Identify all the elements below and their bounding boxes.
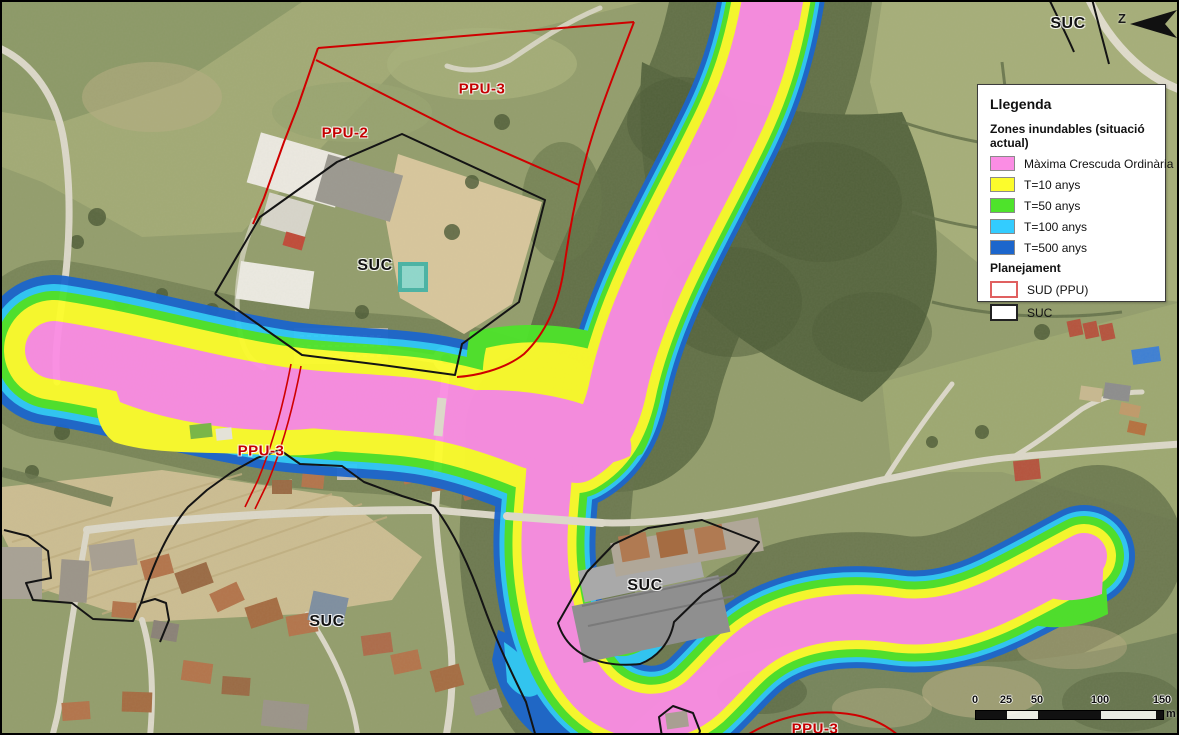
- map-label-ppu3-mid: PPU-3: [238, 443, 285, 460]
- scale-bar-segments: [975, 710, 1164, 720]
- mco-swatch: [990, 156, 1015, 171]
- t50-swatch: [990, 198, 1015, 213]
- legend-item-suc: SUC: [990, 304, 1153, 321]
- map-label-suc-factory: SUC: [627, 577, 662, 595]
- scale-unit: m: [1166, 708, 1176, 720]
- legend-item-label: T=50 anys: [1024, 199, 1080, 213]
- scale-tick: 25: [1000, 694, 1012, 706]
- scale-tick: 150: [1153, 694, 1171, 706]
- scale-bar: 0 25 50 100 150 m: [965, 694, 1177, 724]
- legend-item-sud: SUD (PPU): [990, 281, 1153, 298]
- legend: Llegenda Zones inundables (situació actu…: [977, 84, 1166, 302]
- t100-swatch: [990, 219, 1015, 234]
- legend-item-label: SUC: [1027, 306, 1052, 320]
- legend-item-t10: T=10 anys: [990, 177, 1153, 192]
- legend-item-t50: T=50 anys: [990, 198, 1153, 213]
- north-label: Z: [1118, 11, 1126, 26]
- legend-planning-section-title: Planejament: [990, 261, 1153, 275]
- map-label-ppu3-south: PPU-3: [792, 721, 839, 735]
- legend-flood-section-title: Zones inundables (situació actual): [990, 122, 1153, 150]
- legend-item-t500: T=500 anys: [990, 240, 1153, 255]
- scale-tick: 0: [972, 694, 978, 706]
- map-label-suc-school: SUC: [357, 257, 392, 275]
- scale-tick: 100: [1091, 694, 1109, 706]
- map-label-ppu3-north: PPU-3: [459, 81, 506, 98]
- legend-item-label: T=500 anys: [1024, 241, 1087, 255]
- legend-item-label: Màxima Crescuda Ordinària: [1024, 157, 1173, 171]
- t10-swatch: [990, 177, 1015, 192]
- flood-map-canvas: PPU-3 PPU-2 SUC PPU-3 SUC SUC SUC PPU-3 …: [0, 0, 1179, 735]
- legend-title: Llegenda: [990, 96, 1153, 112]
- suc-frame-swatch: [990, 304, 1018, 321]
- map-label-suc-village: SUC: [309, 613, 344, 631]
- legend-item-t100: T=100 anys: [990, 219, 1153, 234]
- scale-tick: 50: [1031, 694, 1043, 706]
- sud-frame-swatch: [990, 281, 1018, 298]
- north-arrow: Z: [1110, 2, 1179, 48]
- legend-item-label: T=10 anys: [1024, 178, 1080, 192]
- legend-item-mco: Màxima Crescuda Ordinària: [990, 156, 1153, 171]
- legend-item-label: T=100 anys: [1024, 220, 1087, 234]
- map-label-suc-topright: SUC: [1050, 15, 1085, 33]
- t500-swatch: [990, 240, 1015, 255]
- legend-item-label: SUD (PPU): [1027, 283, 1088, 297]
- map-label-ppu2: PPU-2: [322, 125, 369, 142]
